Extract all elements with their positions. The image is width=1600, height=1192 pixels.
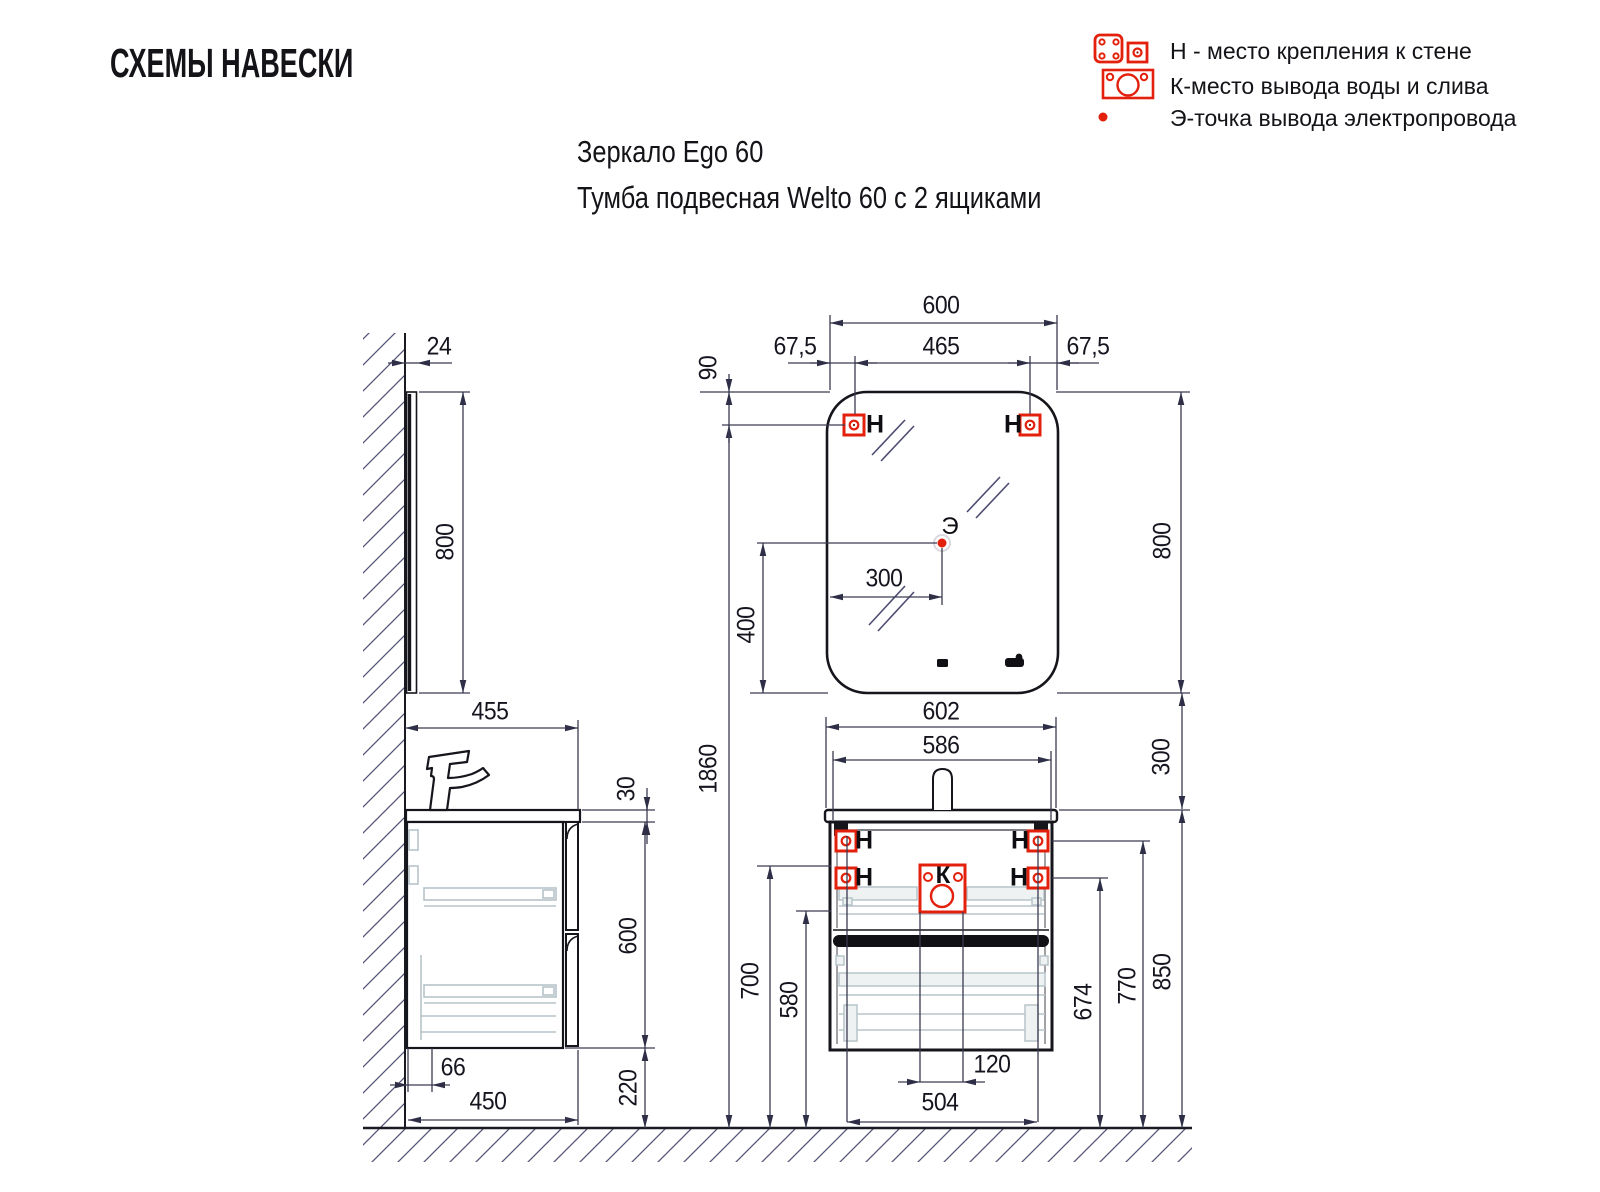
dim-mount-right: 67,5 (1067, 333, 1110, 362)
dim-counter-depth: 455 (471, 698, 508, 727)
dim-floor-to-mid: 700 (737, 962, 766, 999)
legend-item-wall-mount: Н - место крепления к стене (1170, 38, 1472, 65)
mirror-mount-label-left: Н (866, 411, 884, 440)
cabinet-mount-label-r2-left: Н (855, 864, 873, 893)
electric-point-icon (1099, 113, 1108, 122)
dim-cabinet-width: 586 (922, 732, 959, 761)
cabinet-mount-label-r2-right: Н (1010, 864, 1028, 893)
dim-side-cabinet-height: 600 (615, 917, 644, 954)
dim-floor-to-drawer: 580 (776, 981, 805, 1018)
dim-mirror-height: 800 (1149, 522, 1178, 559)
dim-mirror-to-counter: 300 (1148, 738, 1177, 775)
wall-hatch (363, 333, 405, 1128)
subtitle-cabinet: Тумба подвесная Welto 60 с 2 ящиками (577, 180, 1041, 216)
water-drain-icon (1103, 70, 1153, 98)
dim-mirror-width: 600 (922, 292, 959, 321)
drawer-divider (833, 935, 1049, 947)
dim-mount-left: 67,5 (774, 333, 817, 362)
dim-cabinet-mount-span: 504 (921, 1089, 958, 1118)
countertop-side (406, 810, 580, 822)
cabinet-mount-label-r1-left: Н (855, 827, 873, 856)
dim-drain-offset: 120 (973, 1051, 1010, 1080)
water-drain-label: К (936, 862, 951, 890)
dim-mount-offset-top: 90 (695, 356, 724, 381)
faucet-side-icon (427, 751, 489, 810)
subtitle-mirror: Зеркало Ego 60 (577, 134, 763, 170)
page-title: СХЕМЫ НАВЕСКИ (110, 40, 353, 87)
wall-mount-icon (1095, 35, 1147, 62)
dim-counter-thickness: 30 (613, 777, 642, 802)
electric-point-label: Э (941, 513, 958, 541)
dim-floor-gap: 220 (615, 1069, 644, 1106)
legend-item-electric: Э-точка вывода электропровода (1170, 105, 1516, 132)
legend-item-water-drain: К-место вывода воды и слива (1170, 73, 1489, 100)
dim-electric-x: 300 (865, 565, 902, 594)
front-view-cabinet (825, 769, 1057, 1050)
side-view-cabinet (406, 810, 580, 1048)
floor-hatch (363, 1128, 1192, 1162)
mirror-mount-label-right: Н (1004, 411, 1022, 440)
dim-cabinet-depth: 450 (469, 1088, 506, 1117)
sensor-icon (937, 659, 948, 667)
countertop-front (825, 810, 1057, 822)
dim-bottom-inset: 66 (441, 1054, 466, 1083)
dim-floor-to-lower-mount: 674 (1070, 983, 1099, 1020)
cabinet-mount-label-r1-right: Н (1011, 827, 1029, 856)
dim-floor-to-upper-mount: 770 (1114, 967, 1143, 1004)
side-view-mirror (407, 392, 417, 693)
dim-counter-width: 602 (922, 698, 959, 727)
faucet-hole (933, 769, 952, 810)
dim-mount-span: 465 (922, 333, 959, 362)
dim-mirror-offset: 24 (427, 333, 452, 362)
dim-total-height: 1860 (695, 744, 724, 793)
mounting-scheme-page: СХЕМЫ НАВЕСКИ Зеркало Ego 60 Тумба подве… (0, 0, 1600, 1192)
dim-electric-y: 400 (733, 606, 762, 643)
dim-floor-to-counter-top: 850 (1149, 953, 1178, 990)
dim-side-mirror-height: 800 (432, 523, 461, 560)
